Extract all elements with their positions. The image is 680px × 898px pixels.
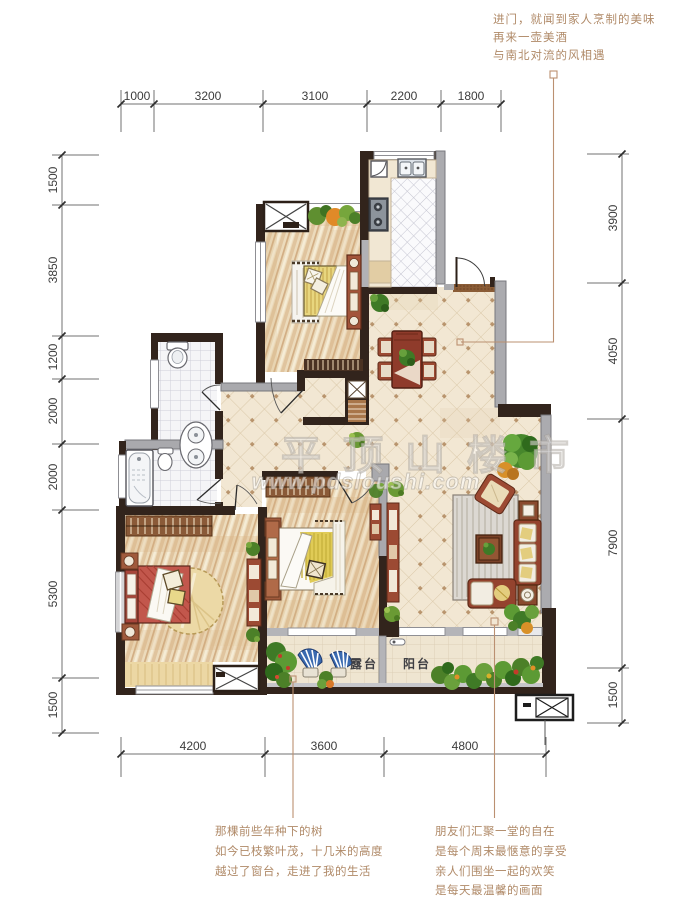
svg-text:2000: 2000 [46, 463, 60, 490]
svg-text:1500: 1500 [46, 166, 60, 193]
svg-text:是每天最温馨的画面: 是每天最温馨的画面 [435, 883, 543, 897]
svg-text:进门，就闻到家人烹制的美味: 进门，就闻到家人烹制的美味 [493, 12, 656, 26]
svg-text:3100: 3100 [302, 89, 329, 103]
svg-text:5300: 5300 [46, 580, 60, 607]
svg-text:7900: 7900 [606, 529, 620, 556]
svg-text:3900: 3900 [606, 204, 620, 231]
svg-text:是每个周末最惬意的享受: 是每个周末最惬意的享受 [435, 844, 567, 858]
svg-text:1800: 1800 [458, 89, 485, 103]
svg-text:亲人们围坐一起的欢笑: 亲人们围坐一起的欢笑 [435, 864, 555, 878]
svg-text:www.pdsloushi.com: www.pdsloushi.com [252, 469, 481, 494]
svg-text:3200: 3200 [195, 89, 222, 103]
svg-text:4200: 4200 [180, 739, 207, 753]
svg-text:朋友们汇聚一堂的自在: 朋友们汇聚一堂的自在 [435, 824, 555, 838]
svg-text:1500: 1500 [606, 681, 620, 708]
svg-text:3600: 3600 [311, 739, 338, 753]
svg-text:2000: 2000 [46, 397, 60, 424]
svg-text:1500: 1500 [46, 691, 60, 718]
svg-text:与南北对流的风相遇: 与南北对流的风相遇 [493, 48, 606, 62]
svg-text:越过了窗台，走进了我的生活: 越过了窗台，走进了我的生活 [215, 864, 371, 878]
svg-text:1200: 1200 [46, 343, 60, 370]
svg-text:2200: 2200 [391, 89, 418, 103]
svg-text:再来一壶美酒: 再来一壶美酒 [493, 30, 568, 44]
svg-text:4800: 4800 [452, 739, 479, 753]
svg-text:露台: 露台 [350, 656, 378, 671]
svg-text:如今已枝繁叶茂，十几米的高度: 如今已枝繁叶茂，十几米的高度 [215, 844, 383, 858]
svg-text:阳台: 阳台 [403, 656, 431, 671]
svg-text:那棵前些年种下的树: 那棵前些年种下的树 [215, 824, 323, 838]
svg-text:3850: 3850 [46, 256, 60, 283]
svg-text:4050: 4050 [606, 337, 620, 364]
svg-text:1000: 1000 [124, 89, 151, 103]
